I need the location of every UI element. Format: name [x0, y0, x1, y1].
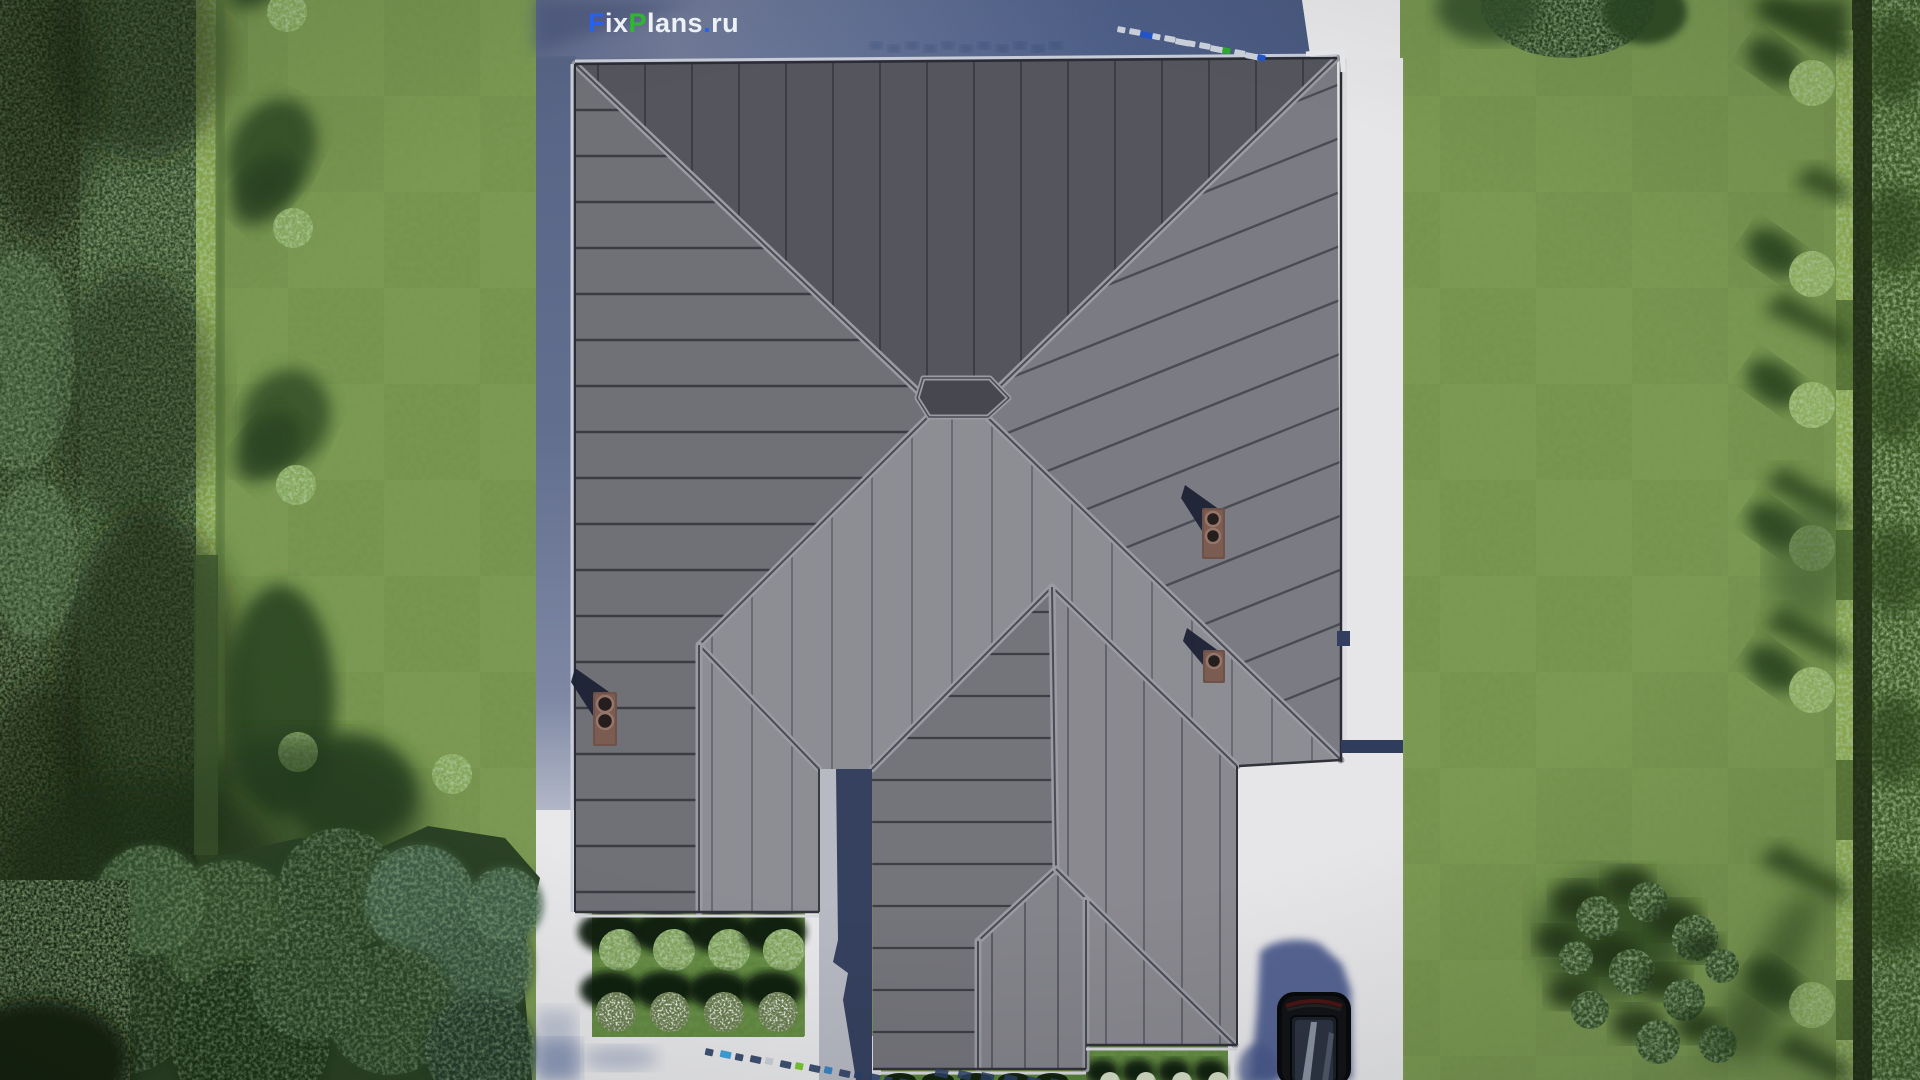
svg-text:FixPlans.ru: FixPlans.ru — [588, 8, 739, 38]
